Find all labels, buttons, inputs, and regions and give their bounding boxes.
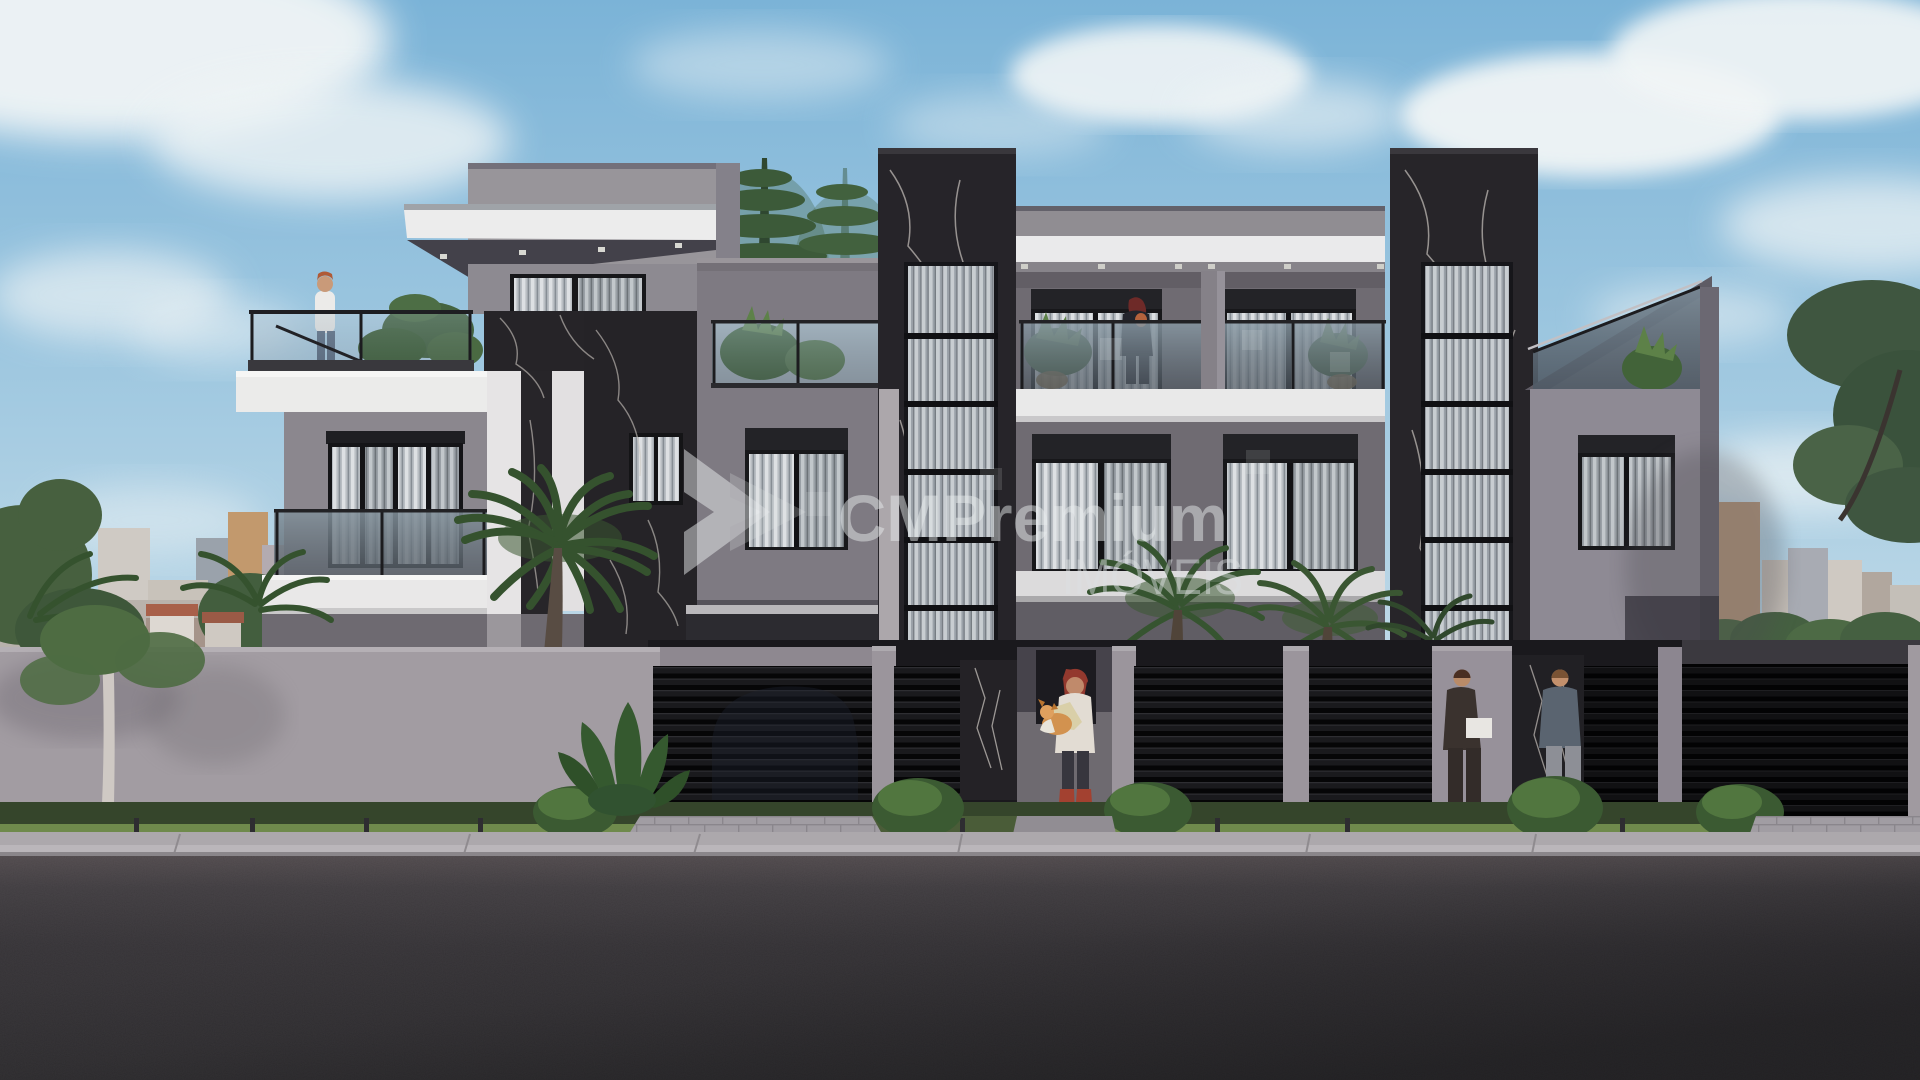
svg-text:CMPremium: CMPremium bbox=[838, 481, 1228, 555]
